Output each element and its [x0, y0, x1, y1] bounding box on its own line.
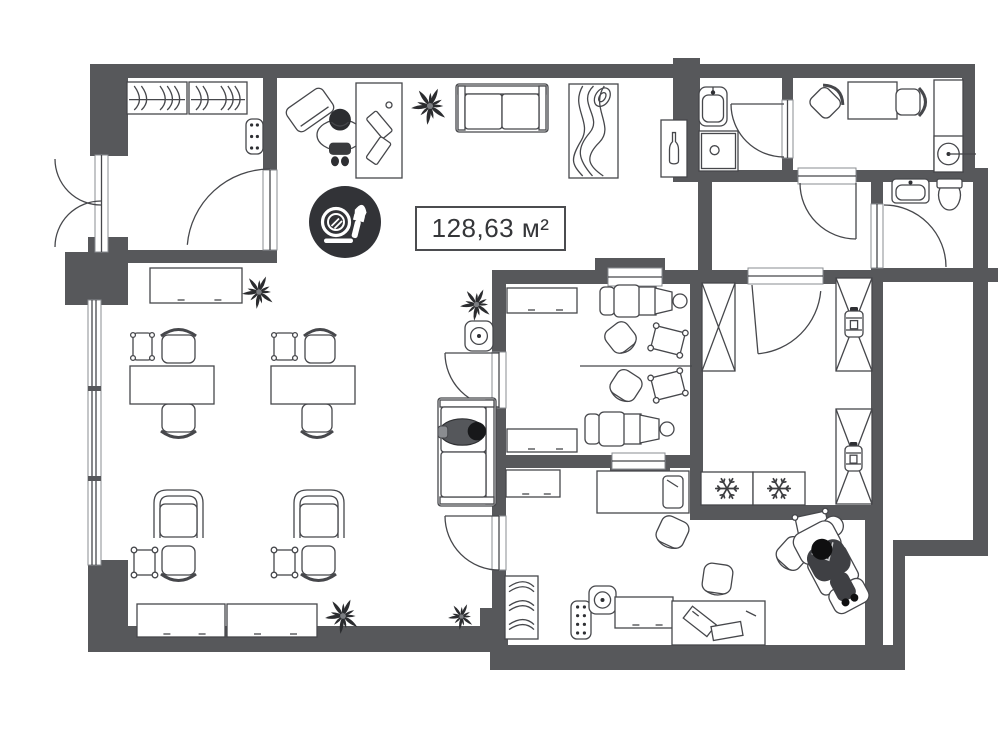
door-frame	[871, 204, 883, 268]
chair	[161, 330, 196, 364]
jar	[845, 307, 863, 337]
recliner	[600, 285, 687, 317]
door-frame	[492, 516, 506, 570]
radiator	[246, 119, 263, 154]
shower	[699, 131, 738, 171]
wall	[90, 64, 128, 156]
wall	[123, 250, 277, 263]
cabinet	[227, 604, 317, 637]
wall	[263, 64, 277, 172]
speaker	[589, 586, 616, 614]
wall	[65, 252, 90, 305]
freezer	[701, 472, 753, 505]
wall	[865, 520, 883, 652]
area-value: 128,63 м²	[432, 213, 550, 244]
floor-plan: 128,63 м²	[0, 0, 1000, 750]
chair	[301, 546, 336, 581]
wall	[893, 540, 905, 670]
door-frame	[95, 155, 108, 252]
sofa	[438, 398, 496, 506]
cabinet	[615, 597, 673, 628]
wall	[871, 270, 883, 542]
sofa	[456, 84, 548, 132]
wall	[492, 282, 506, 354]
window	[88, 300, 101, 565]
toilet	[937, 179, 962, 210]
coatrack	[505, 576, 538, 639]
chair	[896, 88, 926, 116]
chair	[301, 404, 333, 438]
minitable	[131, 547, 158, 578]
sinkh	[892, 179, 929, 203]
door-frame	[782, 100, 793, 158]
table	[848, 82, 897, 119]
washer	[934, 136, 963, 172]
bottlecab	[661, 120, 687, 177]
area-label: 128,63 м²	[415, 206, 566, 251]
makeup-icon	[308, 185, 382, 259]
plan-canvas	[0, 0, 1000, 750]
deskpapers	[672, 601, 765, 645]
xcab	[702, 283, 735, 371]
wall	[690, 505, 883, 520]
door-swing	[731, 104, 784, 157]
jar	[845, 442, 862, 471]
wall	[698, 180, 712, 272]
deskv	[356, 83, 402, 178]
freezer	[753, 472, 805, 505]
smallchair	[272, 333, 298, 361]
chair	[304, 330, 336, 364]
door-swing	[445, 516, 499, 570]
wall	[893, 540, 988, 556]
door-swing	[55, 159, 101, 205]
hangrail	[127, 82, 187, 114]
stool	[653, 513, 692, 552]
wall	[663, 455, 703, 468]
table	[271, 366, 355, 404]
cabinet	[507, 288, 577, 313]
wall	[492, 270, 612, 284]
recliner	[585, 412, 674, 446]
cabinet	[507, 429, 577, 452]
cabinet	[137, 604, 225, 637]
door-swing	[800, 183, 856, 239]
wall	[90, 64, 975, 78]
minitable	[271, 547, 298, 578]
door-frame	[748, 268, 823, 284]
radiator	[571, 601, 591, 639]
door-frame	[798, 168, 856, 184]
stool	[701, 562, 734, 597]
hangrail	[189, 82, 247, 114]
door-swing	[752, 285, 821, 354]
door-frame	[263, 170, 277, 250]
minitable	[647, 322, 688, 358]
armchair	[154, 490, 203, 538]
chair	[807, 81, 848, 122]
rug	[569, 84, 618, 178]
armchair	[294, 490, 344, 538]
personsit	[438, 419, 486, 445]
sinkv	[699, 87, 727, 126]
plant	[460, 289, 489, 320]
door-swing	[884, 205, 946, 267]
door-swing	[187, 169, 270, 245]
wall	[962, 64, 975, 176]
makeup-icon-svg	[308, 185, 382, 259]
door-frame	[612, 453, 665, 469]
plan-svg	[0, 0, 1000, 750]
stool	[606, 367, 645, 407]
smallchair	[131, 333, 155, 361]
bed	[597, 471, 689, 513]
speaker	[465, 321, 493, 351]
chair	[161, 546, 196, 581]
wall	[703, 270, 750, 284]
wall	[492, 455, 614, 468]
cabinet	[506, 470, 560, 497]
plant	[411, 89, 445, 125]
wall	[871, 268, 998, 282]
cabinet	[150, 268, 242, 303]
wall	[973, 168, 988, 556]
wall	[490, 645, 905, 670]
plant	[242, 277, 272, 309]
stool	[602, 319, 641, 358]
minitable	[647, 367, 688, 403]
chair	[161, 404, 196, 438]
door-frame	[608, 268, 662, 286]
wall	[871, 182, 883, 206]
wall	[492, 568, 506, 628]
table	[130, 366, 214, 404]
